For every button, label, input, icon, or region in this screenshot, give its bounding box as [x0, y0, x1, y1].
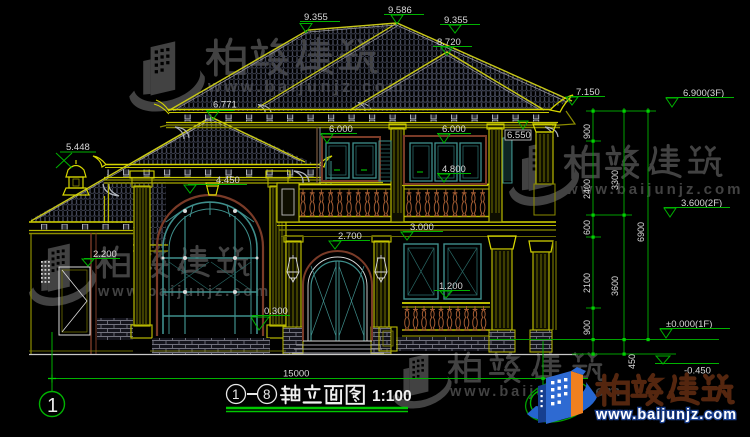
svg-text:450: 450: [627, 354, 637, 369]
svg-text:6.550: 6.550: [507, 130, 531, 141]
svg-text:6900: 6900: [636, 222, 646, 242]
svg-text:900: 900: [582, 124, 592, 139]
svg-text:www.baijunjz.com: www.baijunjz.com: [595, 407, 737, 423]
svg-text:900: 900: [582, 320, 592, 335]
svg-text:3300: 3300: [610, 170, 620, 190]
svg-text:3600: 3600: [610, 276, 620, 296]
svg-text:1: 1: [47, 395, 58, 417]
svg-text:2100: 2100: [582, 273, 592, 293]
svg-text:600: 600: [582, 220, 592, 235]
svg-text:5.448: 5.448: [66, 142, 90, 153]
svg-text:8: 8: [263, 387, 271, 402]
svg-text:15000: 15000: [283, 369, 309, 380]
svg-text:6.771: 6.771: [213, 100, 237, 111]
svg-text:1: 1: [232, 387, 240, 402]
svg-text:2400: 2400: [582, 179, 592, 199]
svg-text:1:100: 1:100: [372, 388, 412, 405]
